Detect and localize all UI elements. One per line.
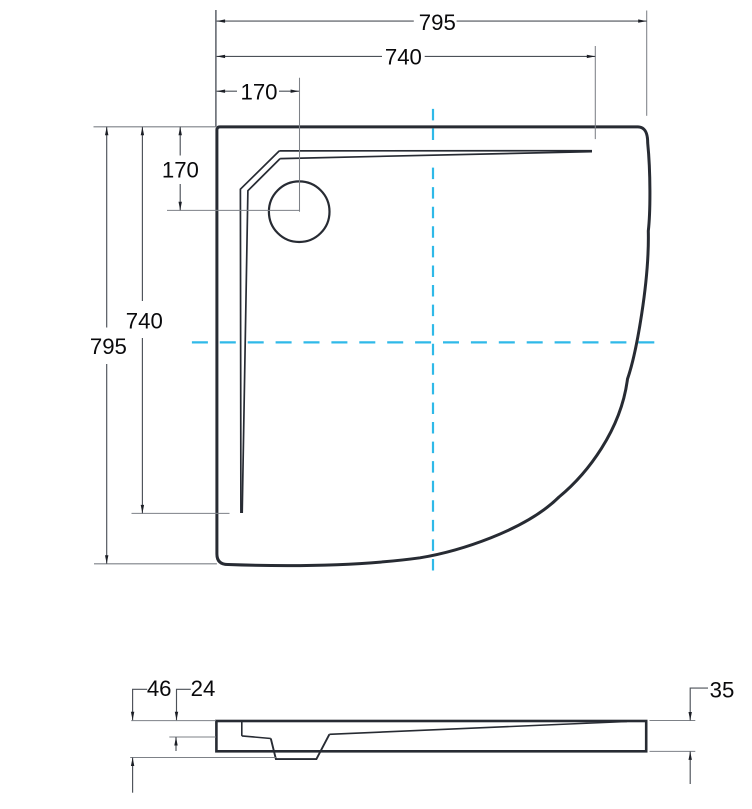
svg-text:35: 35: [710, 678, 735, 703]
svg-text:795: 795: [90, 334, 127, 359]
svg-text:24: 24: [191, 676, 216, 701]
svg-text:795: 795: [419, 10, 456, 35]
svg-text:740: 740: [126, 308, 163, 333]
svg-text:46: 46: [147, 676, 172, 701]
svg-text:170: 170: [240, 79, 277, 104]
svg-text:170: 170: [162, 157, 199, 182]
svg-text:740: 740: [385, 44, 422, 69]
